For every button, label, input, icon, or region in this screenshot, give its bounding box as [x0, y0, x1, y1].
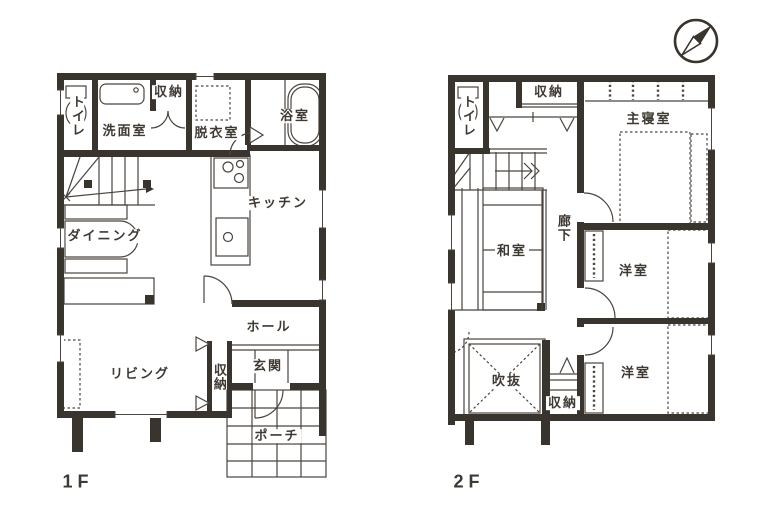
room-label-void: 吹抜 [490, 374, 524, 388]
room-label-washroom: 洗面室 [100, 124, 149, 138]
handrail-icon [560, 358, 574, 373]
floor2-plan [448, 75, 715, 445]
room-label-dining: ダイニング [65, 229, 144, 243]
room-label-entrance: 玄関 [251, 359, 285, 373]
washer-space-icon [196, 86, 230, 120]
compass-icon [675, 20, 717, 62]
floorplan-canvas: トイレ 洗面室 収納 脱衣室 浴室 キッチン ダイニング ホール リビング 収納… [0, 0, 768, 512]
walls-2f [448, 75, 715, 445]
room-label-closet-entry: 収納 [212, 361, 226, 393]
bed-icon [668, 325, 712, 413]
room-label-closet-1f-top: 収納 [152, 85, 186, 99]
bath-folding-door-icon [250, 127, 263, 143]
washbasin-icon [100, 84, 144, 104]
room-label-living: リビング [108, 367, 172, 381]
room-label-japanese-room: 和室 [495, 244, 529, 258]
room-label-western-room-1: 洋室 [617, 264, 651, 278]
floor-label-2f: 2F [453, 472, 484, 493]
stairs-1f-icon [62, 157, 155, 205]
dining-table-icon [64, 205, 154, 304]
bed-icon [620, 132, 690, 224]
kitchen-counter-icon [211, 155, 250, 265]
floor-label-1f: 1F [62, 472, 93, 493]
room-label-dressing: 脱衣室 [192, 126, 241, 140]
room-label-master-bedroom: 主寝室 [624, 112, 673, 126]
room-label-hall: ホール [244, 320, 293, 334]
tv-board-icon [63, 340, 80, 408]
stairs-2f-icon [452, 149, 547, 190]
doors-2f [584, 193, 615, 355]
floorplan-drawing [0, 0, 768, 512]
room-label-toilet-2f: トイレ [461, 93, 475, 139]
room-label-porch: ポーチ [252, 429, 301, 443]
bed-icon [668, 230, 712, 318]
room-label-closet-2f-top: 収納 [532, 85, 566, 99]
entry-door-icon [255, 390, 283, 418]
room-label-corridor: 廊下 [556, 212, 570, 244]
room-label-toilet-1f: トイレ [70, 93, 84, 139]
room-label-western-room-2: 洋室 [619, 366, 653, 380]
room-label-closet-2f-bottom: 収納 [546, 396, 580, 410]
master-bedroom-furniture [585, 80, 708, 224]
room-label-bathroom: 浴室 [278, 109, 312, 123]
room-label-kitchen: キッチン [246, 196, 310, 210]
closet-hanger-pipe-icon [488, 104, 578, 131]
